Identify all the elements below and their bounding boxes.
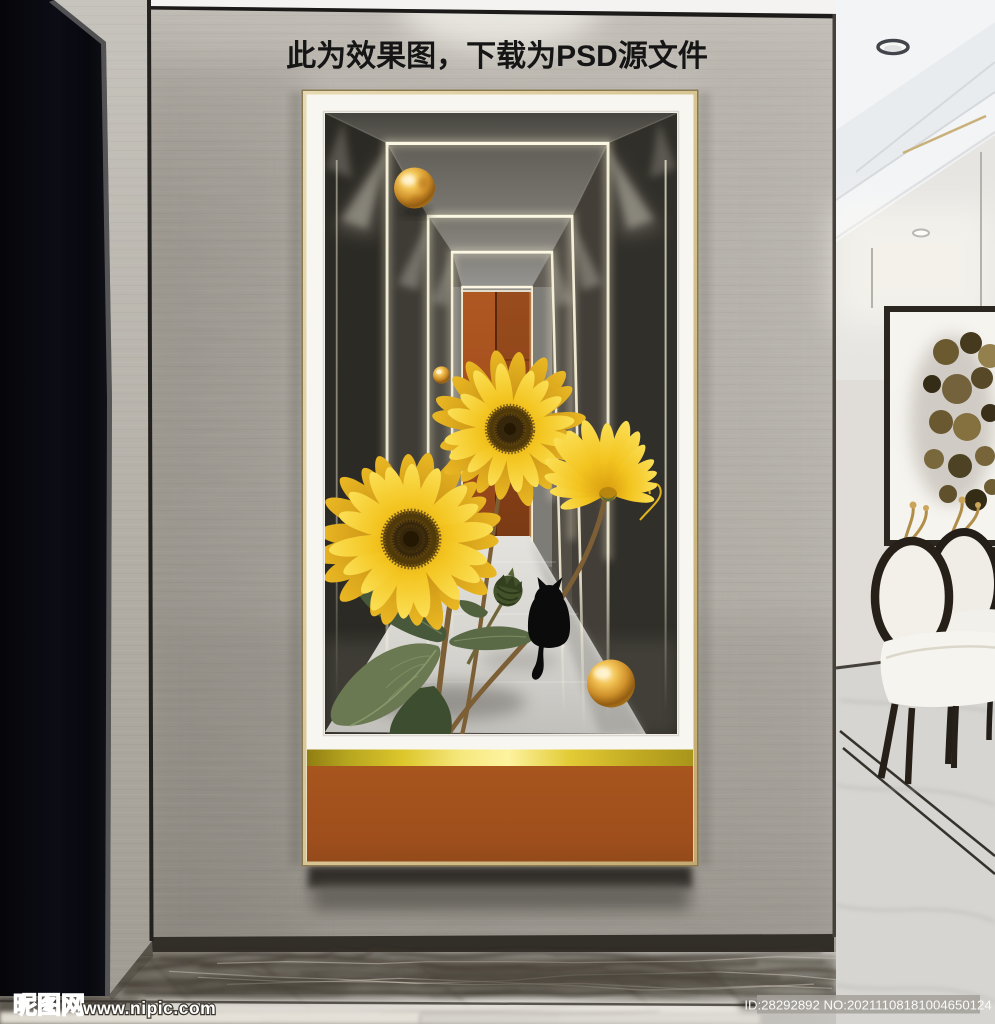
svg-text:昵图网: 昵图网 [13, 992, 85, 1019]
svg-text:此为效果图，下载为PSD源文件: 此为效果图，下载为PSD源文件 [286, 39, 708, 73]
svg-text:ID:28292892 NO:202111081810046: ID:28292892 NO:20211108181004650124 [744, 998, 991, 1013]
svg-text:www.nipic.com: www.nipic.com [82, 998, 216, 1018]
